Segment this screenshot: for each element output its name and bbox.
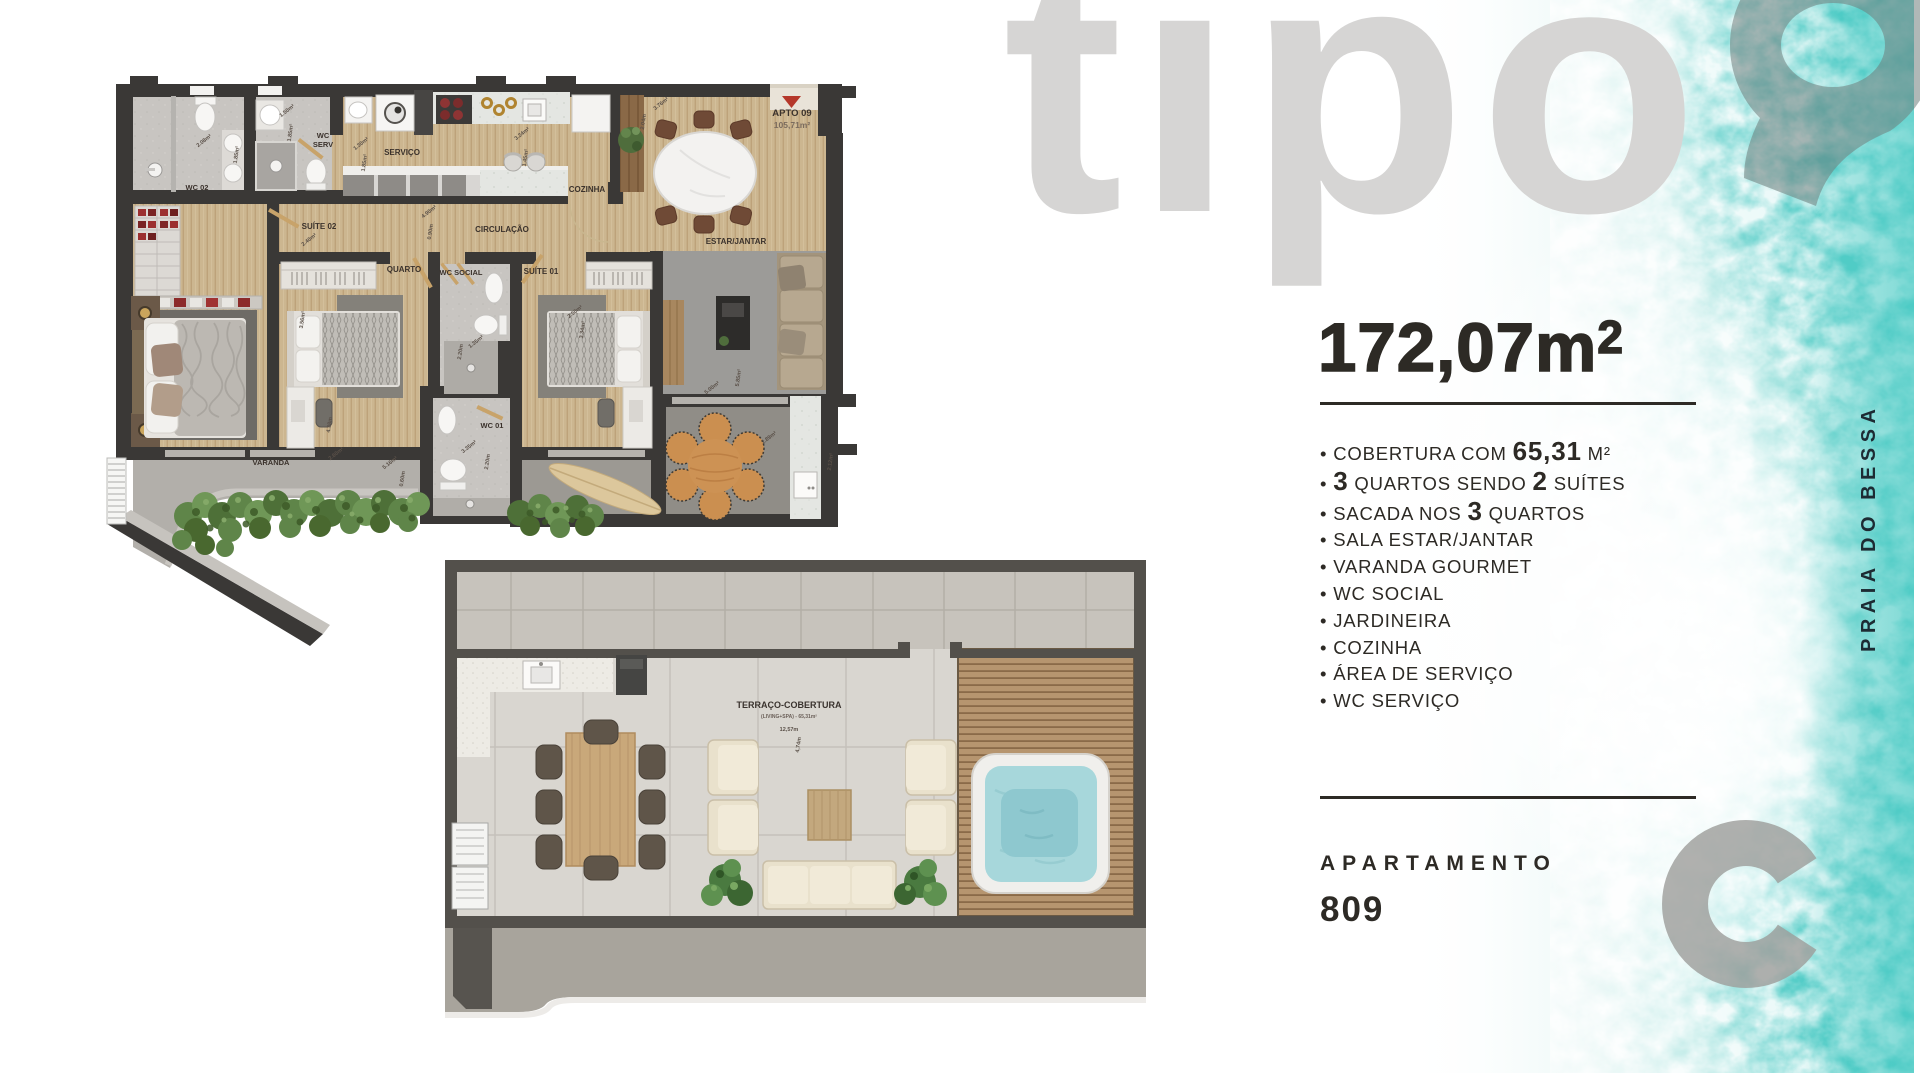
- svg-text:12,57m: 12,57m: [780, 727, 799, 733]
- svg-text:(LIVING+SPA) - 65,31m²: (LIVING+SPA) - 65,31m²: [761, 714, 817, 720]
- svg-text:TERRAÇO-COBERTURA: TERRAÇO-COBERTURA: [737, 700, 842, 710]
